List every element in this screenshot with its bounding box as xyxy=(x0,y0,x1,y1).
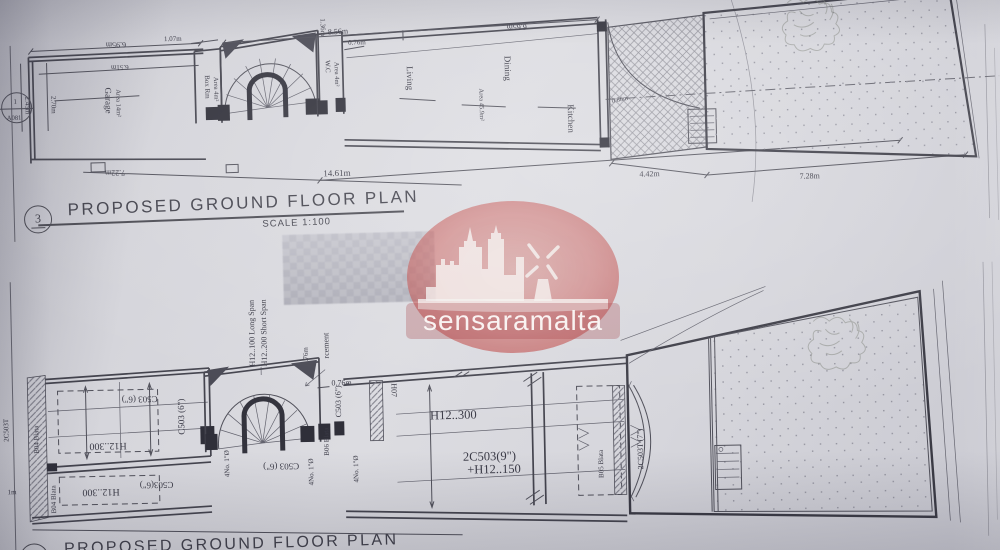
plan-scale: SCALE 1:100 xyxy=(262,216,331,230)
plan-number-marker: 3 xyxy=(24,205,53,234)
section-marker-number: 1 xyxy=(13,98,17,106)
watermark: sensaramalta xyxy=(398,199,628,363)
label-2c503t-7: 2C503T (7") xyxy=(635,428,645,469)
label-h12-100-long-span: H12..100 Long Span xyxy=(247,300,257,367)
label-c503-6-compact: C503(6") xyxy=(140,480,174,491)
dim-6-51: 6.51m xyxy=(110,63,128,71)
label-b04-a: B04 Blata xyxy=(32,425,41,454)
label-c503-6-shaft: C503 (6") xyxy=(333,385,343,417)
box-room-label: Box Rm xyxy=(203,75,212,99)
living-label: Living xyxy=(405,66,416,91)
dim-6-65: 6.65m xyxy=(506,22,527,32)
dim-1-07: 1.07m xyxy=(164,35,182,43)
dim-2-70: 2.70m xyxy=(49,96,57,114)
rear-garden-structural xyxy=(619,280,960,529)
spiral-staircase-structural: 4No. 1"Ø 4No. 1"Ø 4No. 1"Ø C503 (6") B06… xyxy=(204,357,361,488)
box-room: Box Rm Area 4m² 1.07m xyxy=(164,34,222,124)
wc-label: W.C xyxy=(324,60,332,73)
dim-4-42: 4.42m xyxy=(639,169,660,179)
label-h12-300-b: H12..300 xyxy=(82,486,119,498)
watermark-brand: sensaramalta xyxy=(423,305,603,336)
section-marker-ref: A081 xyxy=(7,115,22,122)
wc-room: W.C Area 4m² 0.76m xyxy=(316,31,368,116)
label-4no-c: 4No. 1"Ø xyxy=(352,455,361,482)
wc-area-label: Area 4m² xyxy=(333,62,341,87)
label-4no-a: 4No. 1"Ø xyxy=(223,450,232,477)
label-reinforcement: rcement xyxy=(321,332,331,359)
label-c503-6-under-stair: C503 (6") xyxy=(263,461,299,472)
garden xyxy=(703,0,979,165)
dim-6-95: 6.95m xyxy=(105,40,126,50)
label-h12-200-short-span: H12..200 Short Span xyxy=(259,299,269,366)
label-1m: 1m xyxy=(8,488,18,496)
label-b05: B05 Blata xyxy=(597,449,606,478)
label-b04-b: B04 Blata xyxy=(49,484,58,513)
label-c503-6-a: C503 (6") xyxy=(122,394,158,405)
dining-label: Dining xyxy=(502,56,513,82)
garage-room: Garage Area 14m² 6.95m 6.51m 2.70m 2.45m… xyxy=(20,32,462,196)
label-b06: B06 Blata xyxy=(322,427,331,456)
right-structural-room: H12..300 2C503(9") +H12..150 B05 Blata 2… xyxy=(343,357,652,527)
dim-14-61: 14.61m xyxy=(323,168,351,179)
label-4no-b: 4No. 1"Ø xyxy=(307,458,316,485)
box-room-area-label: Area 4m² xyxy=(212,77,220,102)
label-h07: H07 xyxy=(389,383,398,397)
photographed-floor-plan-sheet: Garage Area 14m² 6.95m 6.51m 2.70m 2.45m… xyxy=(0,0,1000,550)
label-2c503t-edge: 2C503T xyxy=(2,418,10,442)
dining-area-label: Area 45.9m² xyxy=(477,88,485,121)
garage-label: Garage xyxy=(103,87,114,113)
label-h12-300-a: H12..300 xyxy=(89,440,126,452)
dim-8-56: 8.56m xyxy=(328,26,349,36)
label-h12-300-right: H12..300 xyxy=(430,407,477,422)
dim-7-28: 7.28m xyxy=(799,171,820,181)
plan2-number-marker xyxy=(20,543,49,550)
label-h12-150: +H12..150 xyxy=(467,462,521,477)
garage-area-label: Area 14m² xyxy=(114,89,122,117)
label-c503-6-b: C503 (6") xyxy=(176,399,187,435)
spiral-staircase: 1.36m xyxy=(216,18,329,123)
